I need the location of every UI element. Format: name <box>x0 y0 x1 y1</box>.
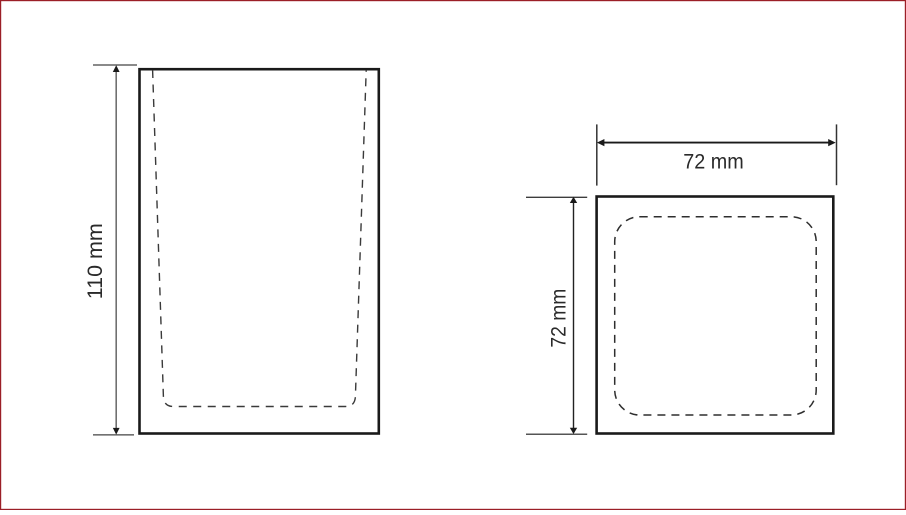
svg-text:72 mm: 72 mm <box>546 289 570 348</box>
svg-text:72 mm: 72 mm <box>683 149 744 173</box>
svg-text:110 mm: 110 mm <box>83 223 107 299</box>
